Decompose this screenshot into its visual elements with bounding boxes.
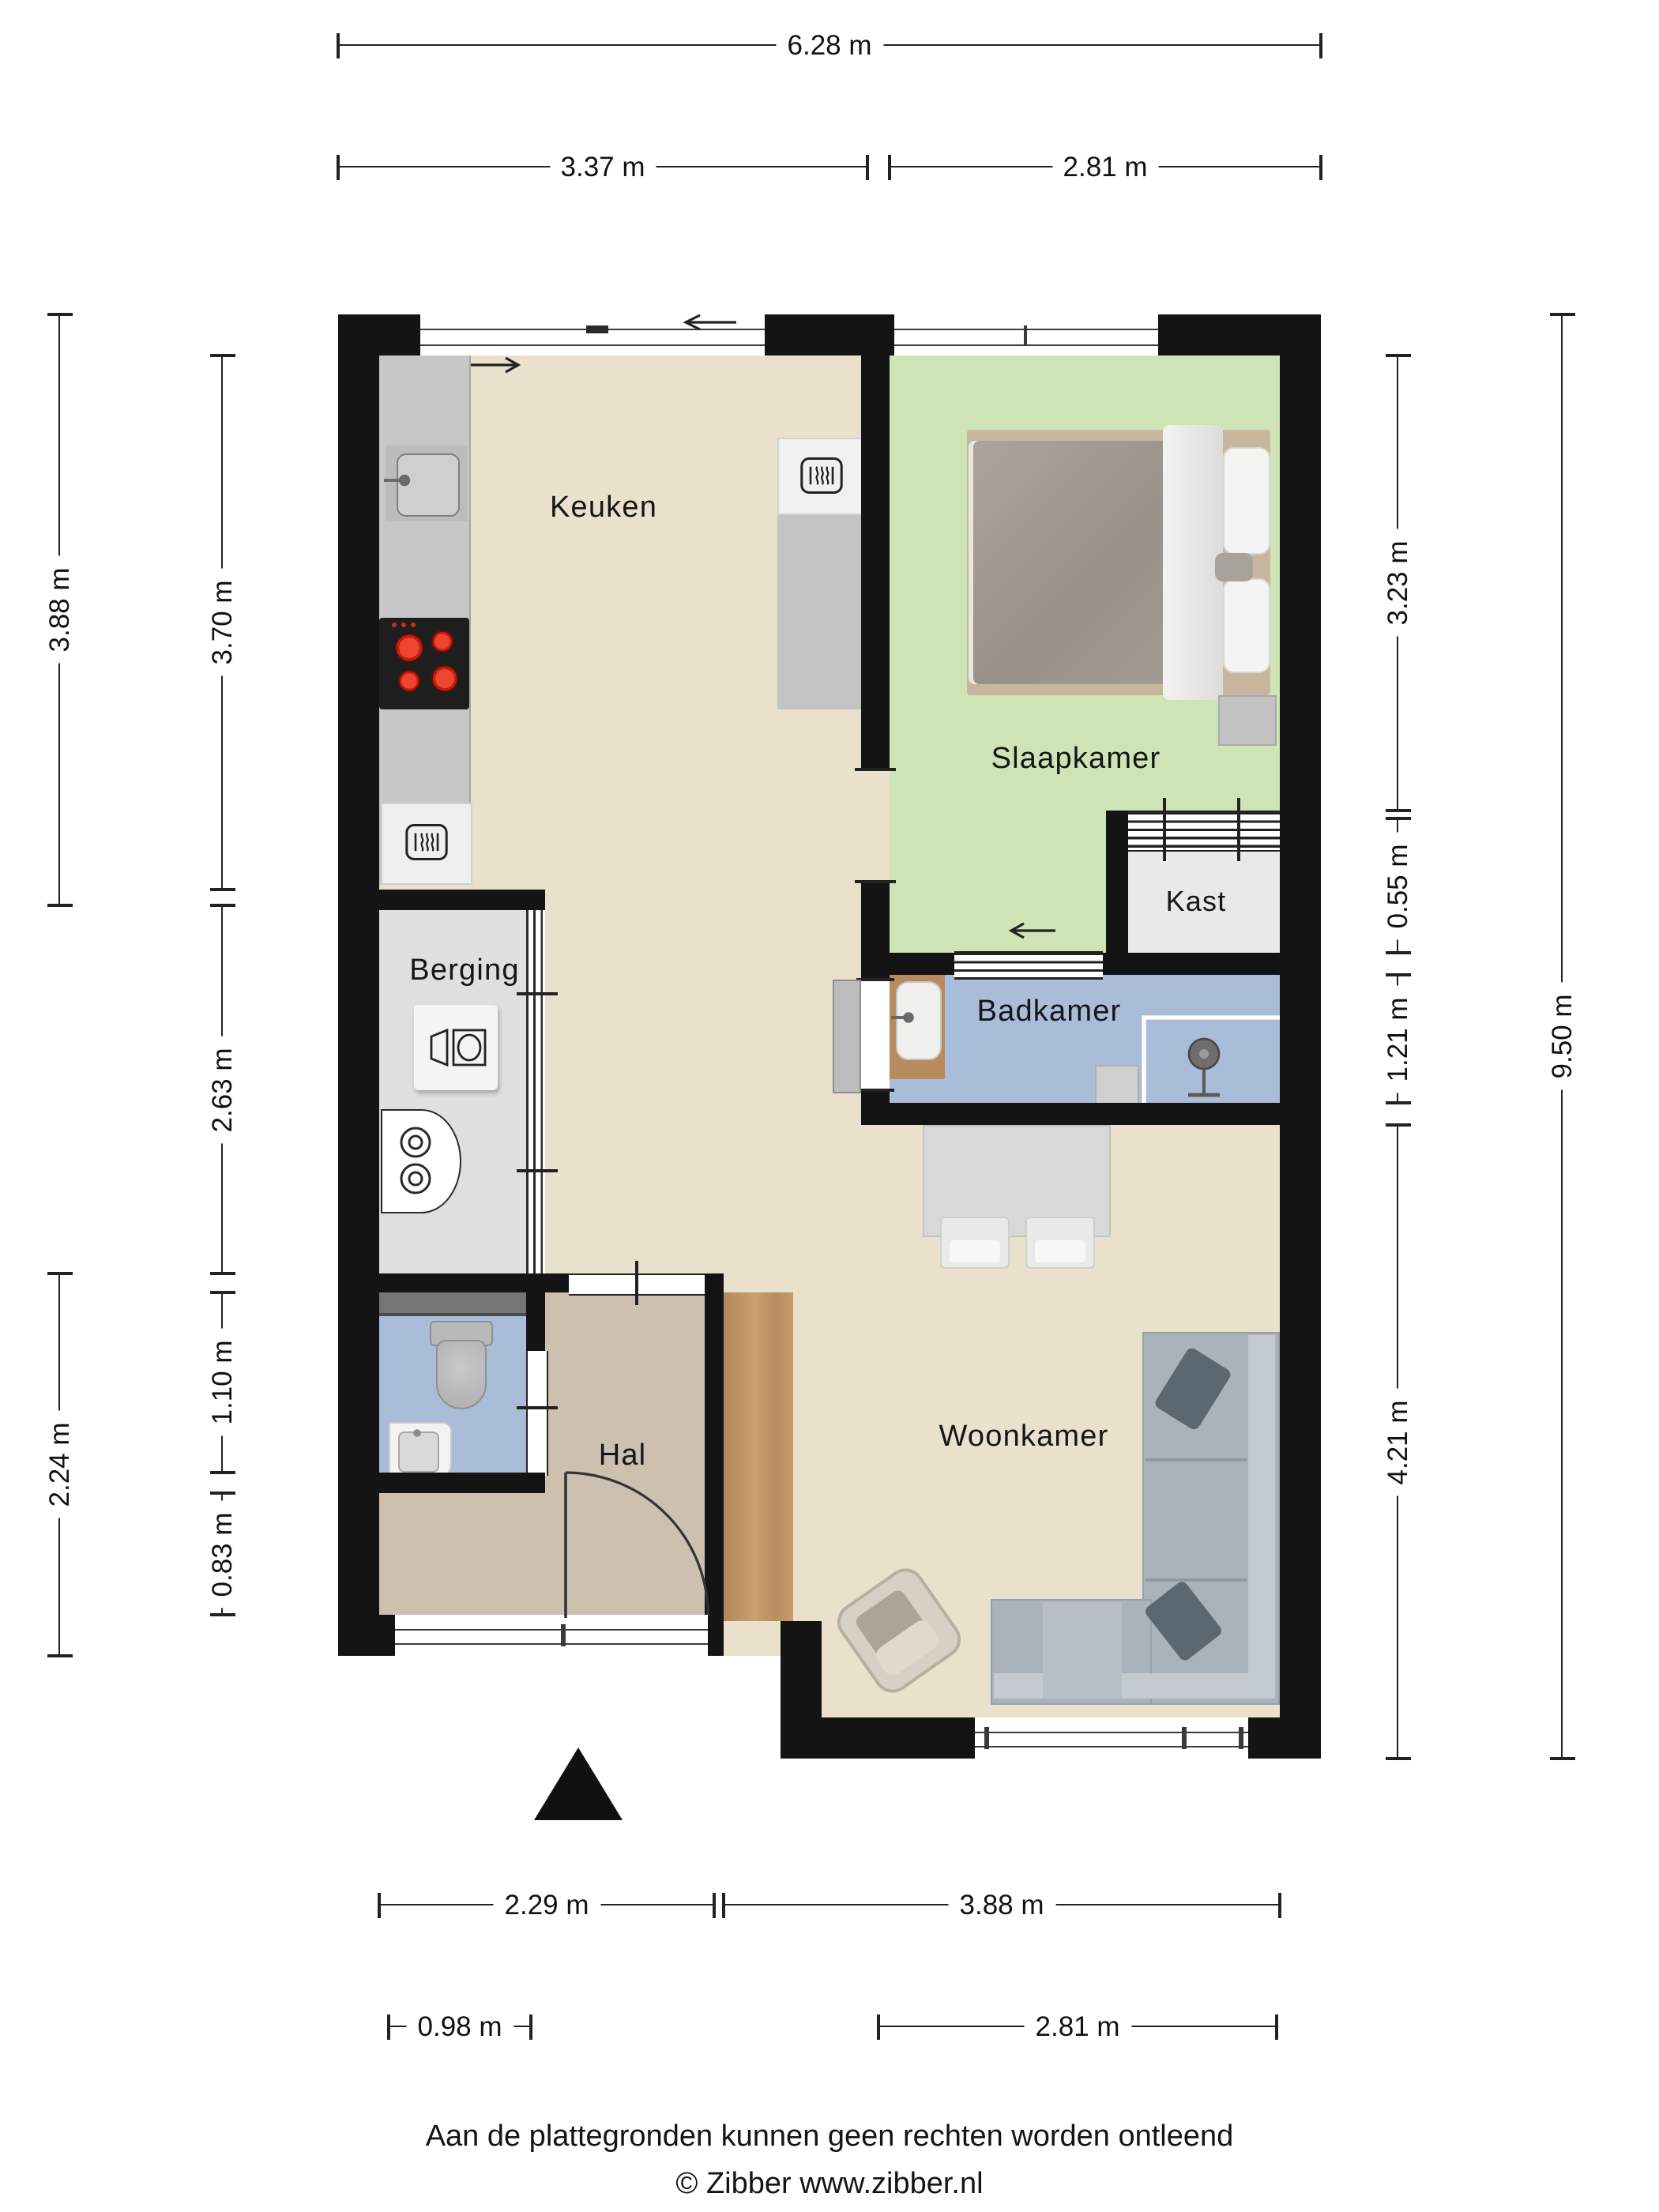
room-label-keuken: Keuken [550,491,657,526]
dim-label: 2.29 m [494,1887,600,1924]
dim-right-badkamer: 1.21 m [1397,975,1398,1103]
front-door [566,1473,708,1618]
disclaimer-text: Aan de plattegronden kunnen geen rechten… [0,2120,1659,2155]
dim-label: 3.88 m [949,1887,1055,1924]
dim-bottom-woonkamer: 3.88 m [724,1904,1280,1905]
dim-label: 9.50 m [1544,984,1581,1090]
dim-label: 0.83 m [205,1501,241,1608]
room-label-hal: Hal [599,1439,647,1474]
window-arrow-right [471,358,518,372]
room-label-woonkamer: Woonkamer [939,1420,1109,1455]
dim-label: 3.23 m [1380,530,1416,637]
dim-left-outer-lower: 2.24 m [58,1273,60,1656]
dim-label: 2.63 m [205,1036,241,1143]
corner-basin-tap [413,1429,421,1437]
dim-bottom-hal: 2.29 m [379,1904,714,1905]
copyright-text: © Zibber www.zibber.nl [0,2168,1659,2203]
dim-right-total: 9.50 m [1561,314,1563,1759]
dim-label: 0.55 m [1380,833,1416,939]
dim-label: 3.88 m [42,557,78,664]
dim-top-right: 2.81 m [890,166,1321,167]
dim-right-kast: 0.55 m [1397,818,1398,953]
dim-label: 4.21 m [1380,1389,1416,1495]
dim-label: 3.70 m [205,570,241,676]
dim-label: 6.28 m [777,28,883,64]
window-arrow-left [686,315,736,329]
floor-plan: Keuken Slaapkamer Kast Badkamer Berging … [0,0,1659,2212]
dim-bottom-window: 2.81 m [878,2026,1277,2027]
dim-label: 1.21 m [1380,986,1416,1093]
dim-label: 3.37 m [550,149,656,186]
sink-faucet [384,476,408,484]
room-label-kast: Kast [1166,886,1227,919]
dim-right-slaapkamer: 3.23 m [1397,355,1398,811]
dim-bottom-berging: 0.98 m [389,2026,531,2027]
plan-linework [0,0,1659,2212]
room-label-badkamer: Badkamer [977,995,1122,1030]
dim-label: 2.24 m [42,1412,78,1518]
dim-left-hal: 0.83 m [221,1493,223,1615]
shower [1144,1018,1280,1103]
dim-top-total: 6.28 m [338,44,1321,46]
sliding-door-arrow [1011,924,1055,938]
dim-left-keuken: 3.70 m [221,355,223,890]
room-label-berging: Berging [409,954,519,989]
room-label-slaapkamer: Slaapkamer [991,743,1161,777]
vanity-faucet [891,1014,912,1021]
dim-right-woonkamer: 4.21 m [1397,1125,1398,1759]
dim-left-outer-upper: 3.88 m [58,314,60,905]
dim-left-toilet: 1.10 m [221,1292,223,1473]
dim-label: 1.10 m [205,1330,241,1436]
dim-label: 2.81 m [1052,149,1159,186]
dim-label: 2.81 m [1025,2009,1131,2045]
dim-left-berging: 2.63 m [221,905,223,1273]
dim-label: 0.98 m [407,2009,513,2045]
dim-top-left: 3.37 m [338,166,867,167]
